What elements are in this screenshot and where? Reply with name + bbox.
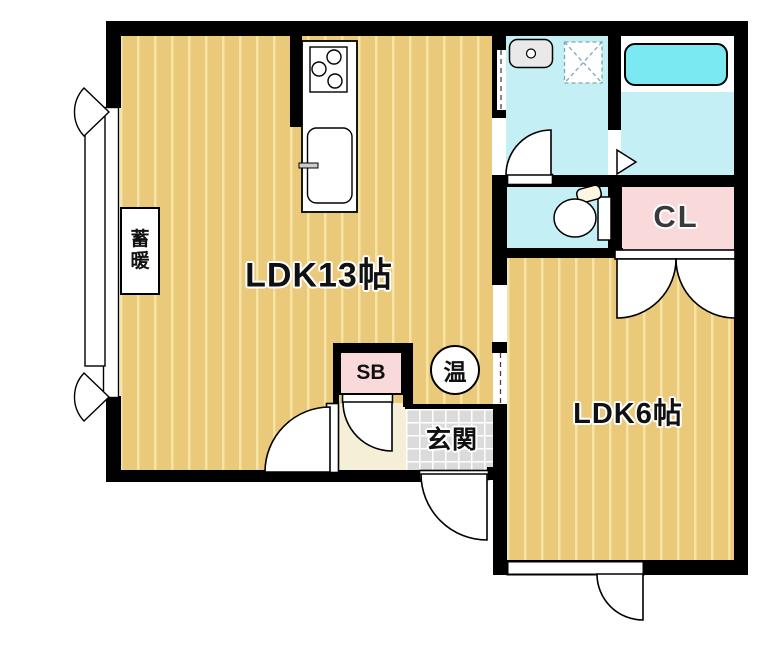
plan-linework [0, 0, 776, 649]
stove-icon [310, 47, 347, 92]
wall [290, 36, 302, 127]
door-swing-icon [343, 402, 392, 451]
shoe-box-label: SB [356, 361, 385, 385]
storage-heater: 蓄暖 [120, 207, 160, 295]
wall [608, 36, 621, 130]
wall [494, 248, 623, 258]
room-label-ldk6: LDK6帖 [573, 390, 683, 432]
wall [106, 21, 748, 36]
window-band [85, 110, 105, 366]
door-swing-icon [597, 574, 643, 620]
door-threshold [508, 175, 553, 185]
windows [74, 88, 118, 421]
door-threshold [615, 250, 735, 259]
wash-basin-icon [510, 40, 553, 68]
shoe-box: SB [339, 351, 403, 395]
window-band [104, 108, 119, 398]
wall [492, 36, 506, 50]
wall [492, 342, 507, 353]
wall [492, 110, 506, 118]
toilet-icon [554, 184, 611, 240]
wall [734, 21, 748, 575]
door-swing-icon [676, 259, 735, 318]
kitchen-fixtures [299, 41, 357, 212]
door-swing-icon [617, 259, 676, 318]
floor-plan: SB 温 蓄暖 LDK13帖 LDK6帖 CL 玄関 [0, 0, 776, 649]
folding-door-icon [617, 150, 636, 174]
door-threshold [508, 562, 644, 575]
room-label-ldk13: LDK13帖 [245, 248, 393, 297]
storage-heater-label: 蓄暖 [130, 229, 151, 273]
faucet-icon [299, 163, 318, 168]
wall [106, 470, 421, 482]
wall [106, 396, 121, 482]
wall [608, 175, 748, 187]
door-swing-icon [265, 407, 330, 472]
door-swing-icon [421, 474, 487, 540]
bathroom-fixtures [621, 36, 734, 92]
entrance-step-edge [405, 404, 493, 409]
wall [493, 404, 507, 575]
wall [106, 21, 121, 108]
wall [403, 352, 413, 407]
water-heater: 温 [430, 345, 480, 395]
door-swing-icon [506, 130, 551, 175]
water-heater-label: 温 [444, 353, 467, 387]
room-label-entrance: 玄関 [426, 420, 478, 456]
wall [492, 175, 507, 285]
room-label-closet: CL [653, 199, 698, 235]
bathtub-icon [625, 44, 727, 85]
washroom-fixtures [510, 40, 603, 84]
washing-machine-pan-icon [565, 42, 603, 83]
wall [492, 48, 497, 110]
kitchen-sink-icon [299, 128, 352, 203]
